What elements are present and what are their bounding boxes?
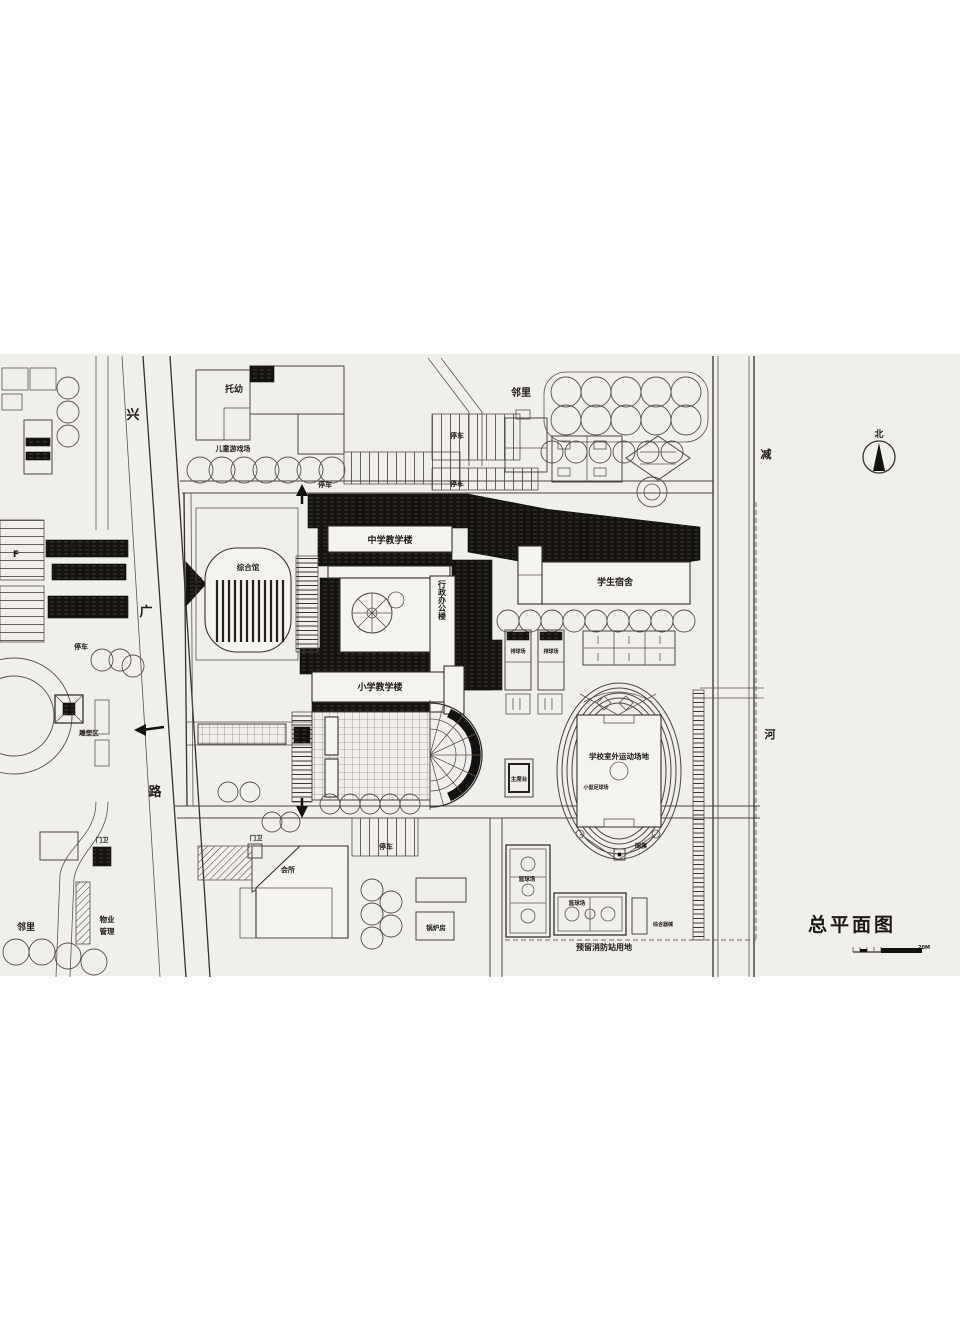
rostrum-label: 主席台 [511,775,528,783]
f-mark-label: F [13,550,19,560]
fire-station-reserve-label: 预留消防站用地 [576,942,632,952]
clubhouse-label: 会所 [281,865,295,874]
gatehouse-label-1: 门卫 [96,835,110,844]
gatehouse-label-2: 门卫 [250,833,264,842]
north-label: 北 [874,428,883,440]
stair-strip-south [292,712,312,802]
volleyball-label-1: 排球场 [510,648,525,655]
sculpture-area-label: 雕塑区 [79,728,99,737]
nursery-label: 托幼 [225,383,243,395]
courtyard [340,578,432,652]
neighborhood-label-top: 邻里 [511,386,531,399]
drawing-title: 总平面图 [808,913,896,936]
boiler-room-label: 锅炉房 [426,923,446,932]
west-road-char-2: 广 [139,604,152,620]
parking-label-3: 停车 [450,479,464,488]
volleyball-label-2: 排球场 [543,648,558,655]
property-management-label-2: 管理 [100,926,115,936]
parking-label-6: 停车 [379,842,393,851]
mini-soccer-label: 小型足球场 [583,784,608,791]
parking-label-4: 停车 [68,542,82,551]
parking-label-1: 停车 [318,480,332,489]
east-river-char-1: 减 [761,447,772,461]
children-playground-label: 儿童游戏场 [215,444,251,453]
soccer-field [577,715,661,827]
apparatus-label: 综合器械 [653,921,673,928]
primary-school-label: 小学教学楼 [356,681,402,693]
scanned-sheet: 兴 广 路 减 河 托幼 儿童游戏场 停车 停车 停车 邻里 [0,0,960,1332]
middle-school-label: 中学教学楼 [367,534,412,546]
neighborhood-label-sw: 邻里 [17,921,35,933]
gym-label: 综合馆 [237,562,260,572]
basketball-label-1: 篮球场 [518,875,536,883]
east-steps [693,690,704,940]
parking-label-2: 停车 [450,431,464,440]
property-management-label-1: 物业 [100,914,115,924]
parking-label-5: 停车 [74,642,88,651]
stair-strip-north [296,556,318,652]
flag-label: 国旗 [635,842,647,850]
west-road-char-1: 兴 [126,407,139,423]
east-river-char-2: 河 [765,727,776,741]
basketball-label-2: 篮球场 [568,899,586,907]
site-plan-drawing: 兴 广 路 减 河 托幼 儿童游戏场 停车 停车 停车 邻里 [0,0,960,1332]
scale-label: 20M [918,945,930,951]
west-road-char-3: 路 [148,784,162,800]
dormitory-label: 学生宿舍 [597,576,634,588]
sports-ground-label: 学校室外运动场地 [589,751,649,761]
admin-label: 行政办公楼 [438,579,447,621]
